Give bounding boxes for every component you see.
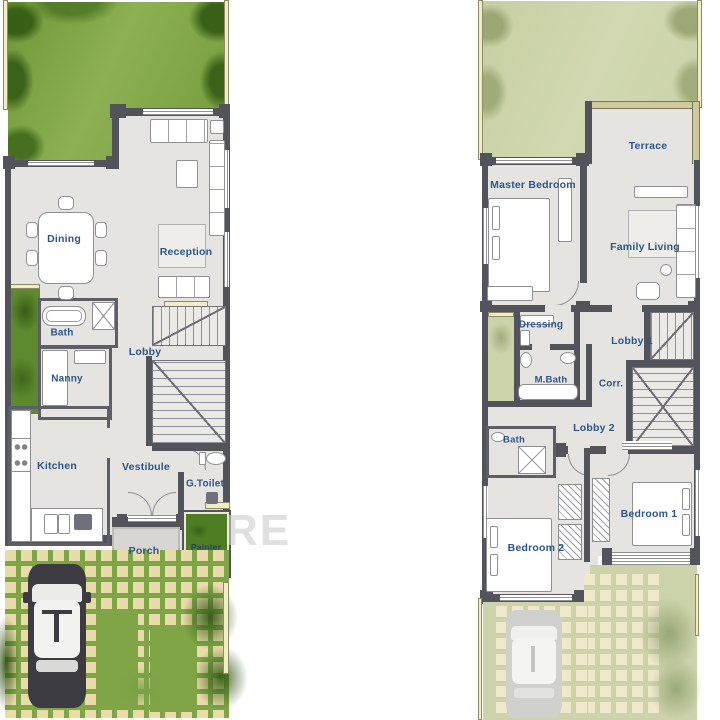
stairs-upper-flight	[650, 312, 694, 360]
shower	[92, 302, 115, 330]
car-roof-line	[54, 610, 59, 642]
wall	[480, 301, 492, 312]
chair	[26, 222, 38, 238]
room-label-nanny: Nanny	[51, 374, 83, 385]
terrace-wall	[588, 101, 700, 109]
room-label-master-bedroom: Master Bedroom	[490, 179, 576, 191]
room-label-bedroom-1: Bedroom 1	[621, 508, 678, 520]
wall	[586, 344, 592, 407]
room-label-kitchen: Kitchen	[37, 460, 77, 472]
wall	[152, 443, 230, 451]
watermark: RE	[226, 506, 291, 556]
car-roof-line	[42, 610, 72, 614]
sofa	[150, 119, 208, 143]
room-label-terrace: Terrace	[629, 140, 668, 152]
chair	[95, 222, 107, 238]
room-label-dining: Dining	[47, 233, 81, 245]
chair	[26, 250, 38, 266]
chair	[58, 196, 74, 210]
tree	[194, 646, 248, 710]
pillow	[682, 514, 690, 536]
wall	[690, 548, 700, 565]
lightwell-garden	[488, 317, 514, 401]
garden-wall	[224, 0, 229, 106]
pillow	[490, 526, 498, 548]
room-label-family-living: Family Living	[610, 241, 680, 253]
side-table	[210, 120, 224, 134]
dressing-shelf	[520, 330, 530, 346]
boundary-wall	[695, 574, 699, 636]
boundary-wall	[223, 582, 229, 674]
room-label-bedroom-2: Bedroom 2	[508, 542, 565, 554]
room-label-lobby-2: Lobby 2	[573, 422, 615, 434]
terrace-floor	[592, 109, 692, 167]
car-rear-window	[514, 688, 554, 698]
stairs-lower-flight	[152, 360, 226, 444]
wall	[584, 448, 590, 562]
desk	[74, 350, 106, 364]
sofa	[158, 276, 210, 298]
room-label-bath: Bath	[50, 328, 73, 339]
boundary-wall	[478, 598, 482, 720]
pillow	[492, 206, 500, 230]
terrace-wall	[692, 101, 700, 169]
room-label-reception: Reception	[160, 246, 213, 258]
shrub	[118, 666, 164, 712]
tv-console	[634, 186, 688, 198]
chair	[58, 286, 74, 300]
garden-wall	[478, 0, 483, 160]
toilet-tank	[199, 452, 206, 465]
door-opening	[545, 305, 571, 312]
wall	[626, 360, 696, 367]
floorplan-image: Dining Reception Bath Lobby Nanny Kitche…	[0, 0, 720, 720]
side-garden	[10, 289, 40, 414]
window	[500, 595, 572, 601]
room-label-porch: Porch	[129, 545, 160, 557]
toilet	[560, 352, 576, 364]
window	[143, 109, 213, 115]
room-label-m-bath: M.Bath	[535, 375, 568, 386]
wall	[482, 305, 700, 312]
door-opening	[612, 305, 642, 312]
wall	[106, 156, 119, 169]
door-opening	[532, 344, 550, 350]
window	[695, 470, 700, 536]
room-label-corridor: Corr.	[599, 379, 623, 390]
sofa	[209, 140, 225, 236]
sink	[58, 514, 70, 534]
car-mirror	[85, 592, 91, 603]
sink	[206, 492, 218, 504]
wardrobe-strip	[622, 441, 672, 450]
appliance	[74, 514, 92, 530]
chair	[95, 250, 107, 266]
wardrobe	[592, 478, 610, 542]
wall	[576, 301, 590, 312]
room-label-painter: Painter	[191, 542, 221, 552]
tree	[182, 584, 238, 650]
room-label-vestibule: Vestibule	[122, 461, 170, 473]
window	[224, 232, 229, 287]
room-label-lobby-1: Lobby 1	[611, 335, 653, 347]
stairs-upper-flight	[152, 306, 226, 346]
garden-wall	[697, 0, 702, 108]
room-label-dressing: Dressing	[519, 320, 563, 331]
balcony-sill	[608, 552, 696, 565]
wall	[602, 548, 612, 565]
ghost-car-graphic	[506, 610, 562, 718]
coffee-table	[176, 160, 198, 188]
wardrobe	[558, 484, 582, 520]
toilet	[206, 452, 226, 465]
door-opening	[104, 428, 110, 458]
wall	[688, 301, 700, 312]
garden-wall	[3, 0, 8, 110]
car-graphic	[28, 564, 86, 708]
pillow	[490, 554, 498, 576]
pillow	[492, 236, 500, 260]
shower	[518, 446, 546, 474]
room-label-g-toilet: G.Toilet	[186, 479, 224, 490]
car-roof-line	[531, 646, 535, 672]
bathtub	[518, 384, 578, 400]
car-mirror	[23, 592, 29, 603]
kitchen-counter	[11, 410, 31, 542]
side-table	[660, 264, 672, 276]
room-label-bath-2: Bath	[503, 435, 525, 446]
bathtub	[42, 306, 86, 326]
wall	[482, 400, 592, 407]
armchair	[636, 282, 660, 300]
sink	[520, 352, 532, 368]
window	[28, 161, 94, 166]
entrance-door	[128, 515, 176, 522]
car-rear-window	[36, 660, 78, 672]
dresser	[487, 286, 533, 301]
stove	[11, 438, 31, 472]
pillow	[682, 488, 690, 510]
room-label-lobby: Lobby	[129, 346, 162, 358]
faded-tree	[650, 658, 702, 720]
wall	[146, 356, 152, 446]
sink	[44, 514, 58, 534]
wall	[580, 157, 587, 283]
dining-table	[38, 212, 94, 284]
window	[496, 158, 572, 164]
stairwell	[632, 367, 694, 447]
